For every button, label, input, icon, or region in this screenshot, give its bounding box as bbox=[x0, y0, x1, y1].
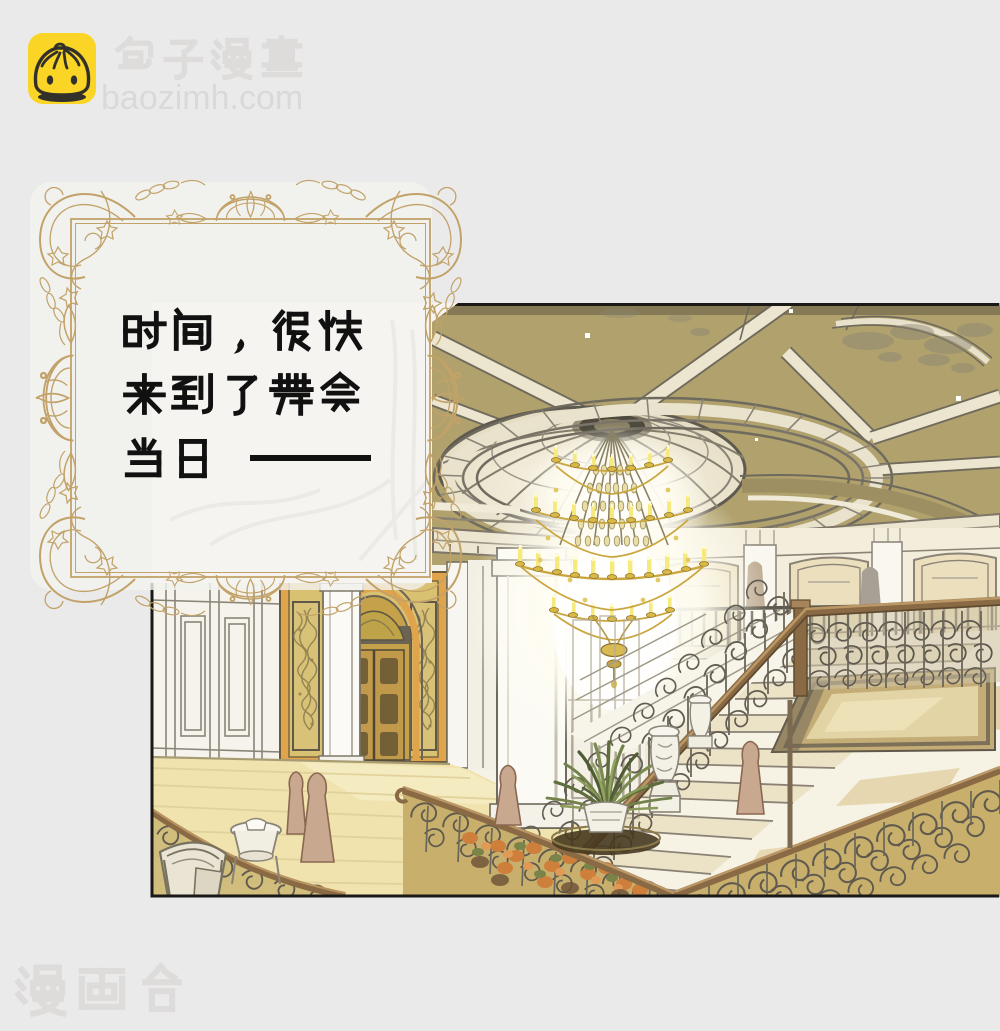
svg-text:baozimh.com: baozimh.com bbox=[101, 79, 303, 117]
